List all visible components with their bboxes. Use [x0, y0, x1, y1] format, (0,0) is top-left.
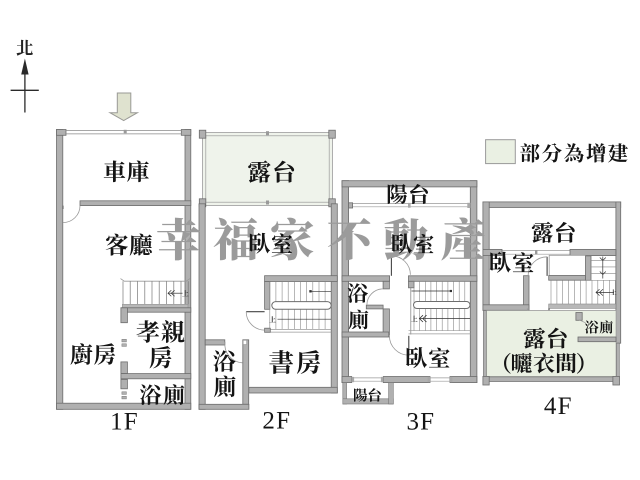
svg-text:3F: 3F: [406, 409, 435, 436]
svg-text:1F: 1F: [110, 409, 139, 436]
svg-text:4F: 4F: [544, 393, 573, 420]
svg-text:2F: 2F: [262, 408, 291, 435]
